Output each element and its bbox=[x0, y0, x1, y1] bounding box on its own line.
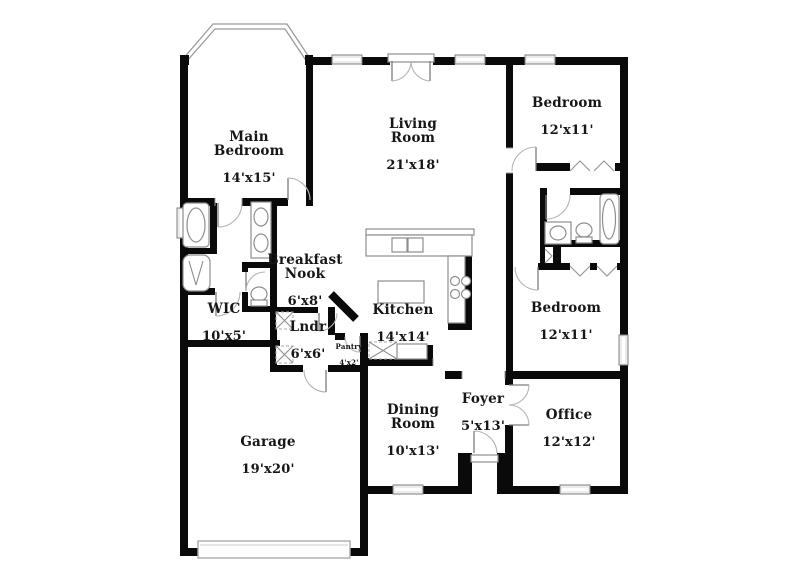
window-living-right bbox=[455, 55, 485, 64]
room-label-pantry: Pantry 4'x2' bbox=[336, 335, 363, 375]
bath2-toilet-icon bbox=[576, 223, 592, 243]
room-label-living-room: Living Room 21'x18' bbox=[386, 103, 439, 187]
window-bedroom-mid bbox=[619, 335, 628, 365]
room-label-dining-room: Dining Room 10'x13' bbox=[386, 389, 439, 473]
bifold-linen-closet bbox=[545, 249, 552, 263]
bath2-sink-icon bbox=[545, 222, 571, 244]
room-label-office: Office 12'x12' bbox=[542, 394, 595, 464]
bifold-closet-bedroom-top bbox=[570, 161, 614, 171]
room-label-bedroom-mid: Bedroom 12'x11' bbox=[531, 287, 601, 357]
room-label-bedroom-top: Bedroom 12'x11' bbox=[532, 82, 602, 152]
door-bath-hall bbox=[218, 203, 242, 227]
bay-window bbox=[180, 24, 313, 65]
room-label-foyer: Foyer 5'x13' bbox=[461, 378, 505, 448]
double-doors-office bbox=[509, 385, 529, 425]
window-office bbox=[560, 485, 590, 494]
garage-door bbox=[198, 541, 350, 558]
door-bath2 bbox=[546, 195, 570, 219]
room-label-kitchen: Kitchen 14'x14' bbox=[373, 289, 434, 359]
toilet-icon bbox=[251, 287, 267, 306]
room-label-garage: Garage 19'x20' bbox=[240, 421, 295, 491]
bath2-tub-icon bbox=[600, 194, 619, 244]
window-bedroom-top bbox=[525, 55, 555, 64]
window-living-left bbox=[332, 55, 362, 64]
bath2-fixtures bbox=[545, 194, 619, 244]
window-dining bbox=[393, 485, 423, 494]
bathtub-icon bbox=[183, 203, 209, 247]
floorplan: Main Bedroom 14'x15' Living Room 21'x18'… bbox=[0, 0, 800, 582]
room-label-wic: WIC 10'x5' bbox=[202, 288, 246, 358]
room-label-laundry: Lndr 6'x6' bbox=[290, 306, 327, 376]
kitchen-sink-icon bbox=[392, 235, 423, 252]
room-label-main-bedroom: Main Bedroom 14'x15' bbox=[214, 116, 284, 200]
french-doors-living bbox=[388, 54, 434, 81]
shower-icon bbox=[183, 255, 210, 291]
